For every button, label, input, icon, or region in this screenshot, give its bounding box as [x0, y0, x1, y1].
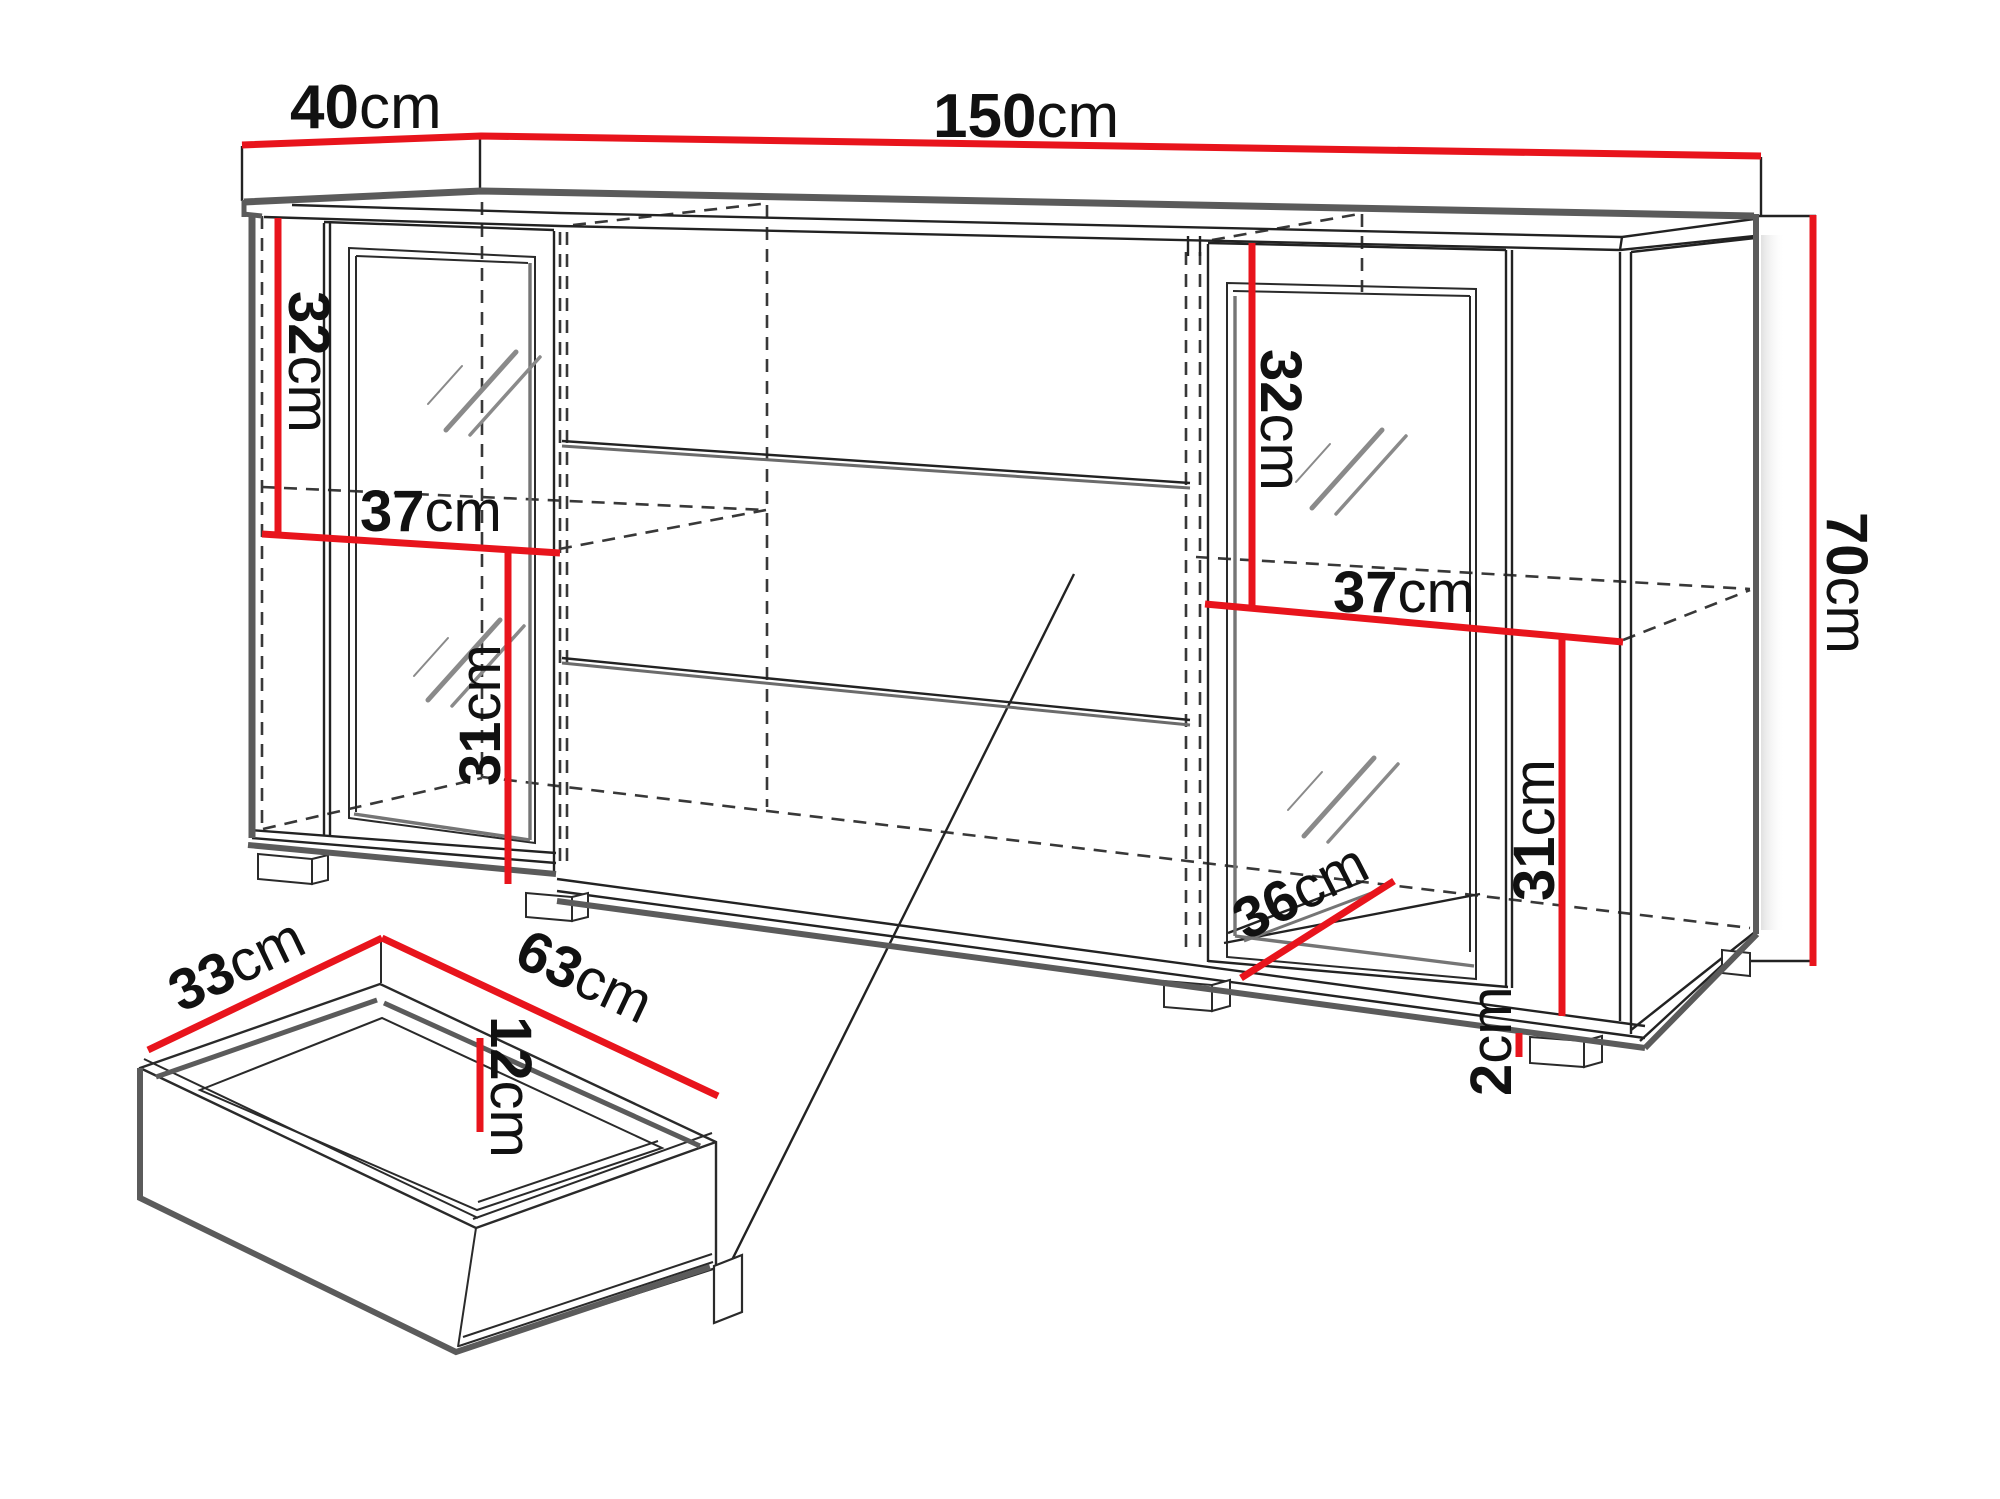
svg-text:31cm: 31cm — [448, 644, 513, 786]
svg-text:37cm: 37cm — [360, 479, 502, 544]
svg-text:70cm: 70cm — [1814, 512, 1879, 654]
svg-text:12cm: 12cm — [478, 1016, 543, 1158]
svg-text:40cm: 40cm — [290, 73, 442, 142]
svg-text:32cm: 32cm — [1248, 349, 1313, 491]
svg-text:32cm: 32cm — [276, 291, 341, 433]
svg-text:2cm: 2cm — [1459, 986, 1524, 1096]
svg-text:150cm: 150cm — [933, 82, 1119, 151]
svg-text:37cm: 37cm — [1333, 560, 1475, 625]
svg-text:31cm: 31cm — [1502, 759, 1567, 901]
